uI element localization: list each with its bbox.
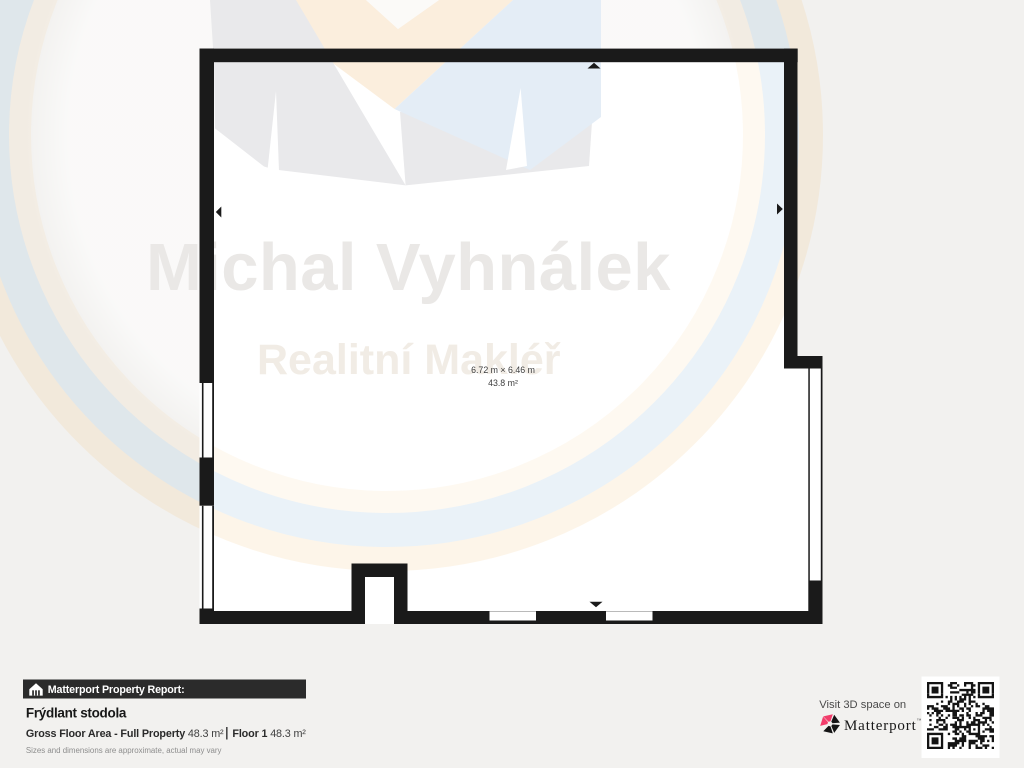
svg-text:Matterport: Matterport [844,718,917,734]
svg-text:Visit 3D space on: Visit 3D space on [819,699,906,711]
svg-text:43.8 m²: 43.8 m² [488,378,518,388]
svg-text:Realitní Makléř: Realitní Makléř [257,336,561,384]
svg-text:Gross Floor Area - Full Proper: Gross Floor Area - Full Property 48.3 m² [26,728,224,740]
svg-text:™: ™ [917,718,922,724]
svg-text:Floor 1 48.3 m²: Floor 1 48.3 m² [232,728,306,740]
svg-text:Sizes and dimensions are appro: Sizes and dimensions are approximate, ac… [26,746,222,755]
svg-text:6.72 m × 6.46 m: 6.72 m × 6.46 m [471,365,535,375]
svg-text:Michal Vyhnálek: Michal Vyhnálek [146,230,671,305]
svg-text:Matterport Property Report:: Matterport Property Report: [48,684,185,696]
svg-text:Frýdlant stodola: Frýdlant stodola [26,705,127,720]
